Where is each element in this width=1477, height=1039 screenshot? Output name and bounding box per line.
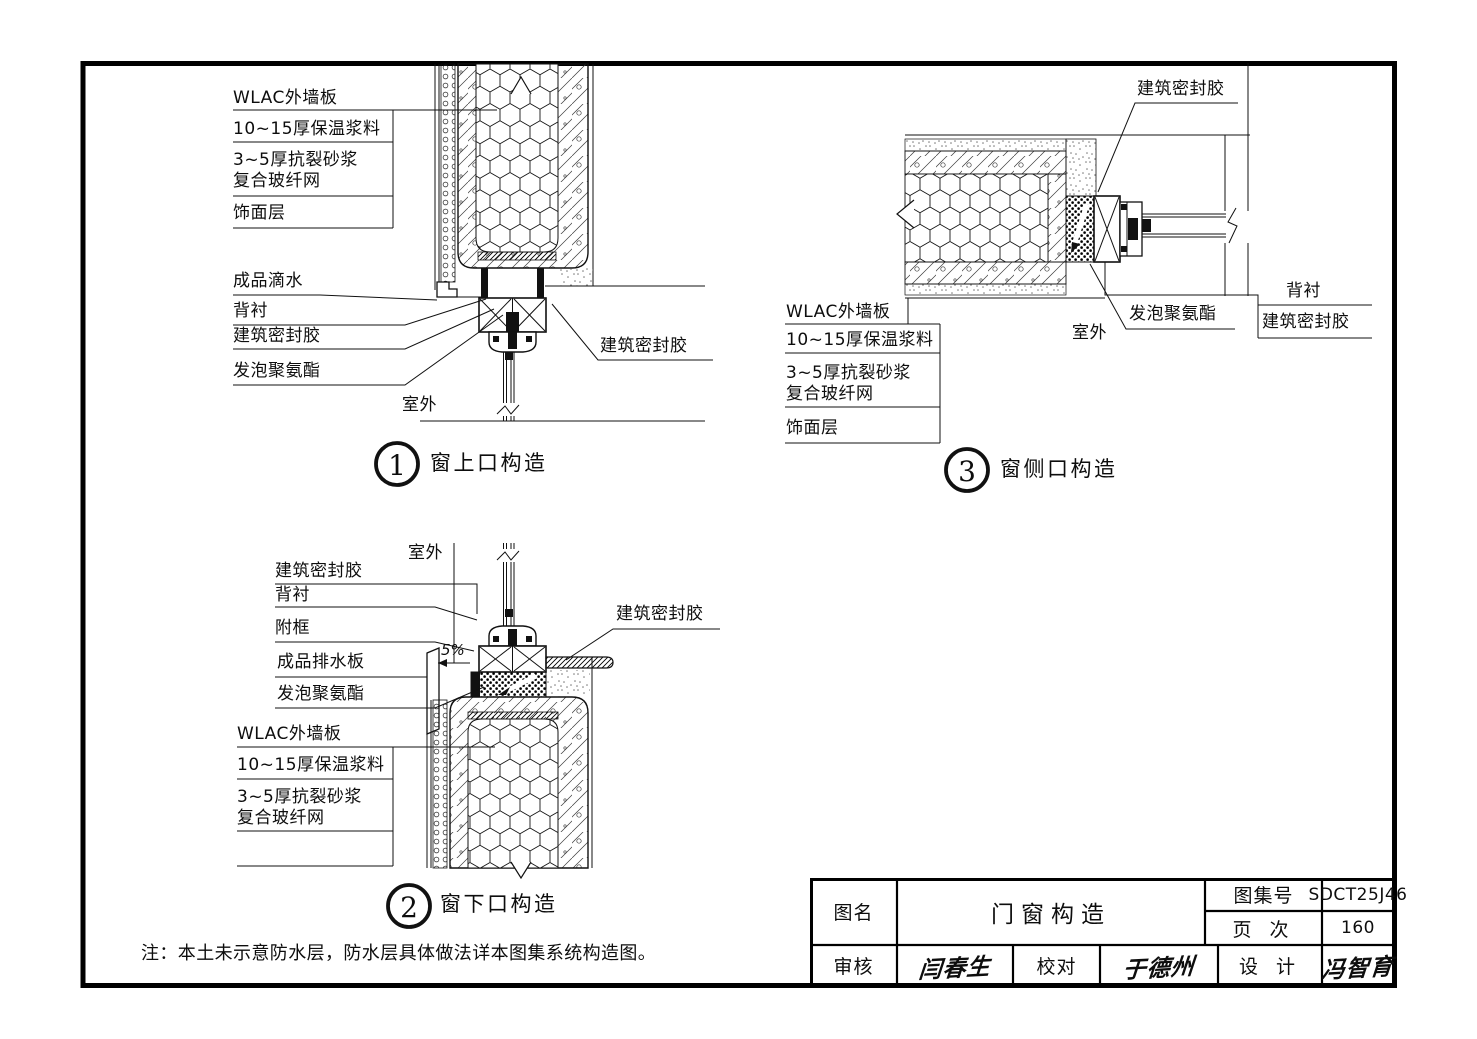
layer-label-insulation-d1: 10~15厚保温浆料 [233,119,381,140]
leader-label-foam-d3: 发泡聚氨酯 [1129,304,1217,325]
leader-label-sealant-d3-top: 建筑密封胶 [1137,79,1225,100]
layer-label-finish-d1: 饰面层 [233,203,286,224]
page-number: 160 [1322,911,1394,945]
leader-label-sealant-d2-left: 建筑密封胶 [275,561,363,582]
layer-label-mortar-d1: 3~5厚抗裂砂浆 复合玻纤网 [233,150,358,191]
callout-number-1: 1 [380,449,414,483]
leader-label-backing-d1: 背衬 [233,301,268,322]
auditor-label: 审核 [810,945,897,986]
leader-label-backing-d3: 背衬 [1286,281,1321,302]
layer-label-wlac-panel-d2: WLAC外墙板 [237,724,341,745]
atlas-number: SDCT25J46 [1322,878,1394,911]
callout-number-3: 3 [950,455,984,489]
leader-label-foam-d1: 发泡聚氨酯 [233,361,321,382]
outdoor-label-d1: 室外 [402,395,437,416]
auditor-signature: 闫春生 [895,942,1014,989]
sheet-border [83,64,1395,986]
layer-label-mortar-d2: 3~5厚抗裂砂浆 复合玻纤网 [237,787,362,828]
note-text: 注：本土未示意防水层，防水层具体做法详本图集系统构造图。 [141,943,656,965]
leader-label-sealant-d3-right: 建筑密封胶 [1262,312,1350,333]
title-block-name-label: 图名 [810,878,897,945]
callout-title-2: 窗下口构造 [440,892,558,918]
leader-label-foam-d2: 发泡聚氨酯 [277,684,365,705]
outdoor-label-d2: 室外 [408,543,443,564]
layer-label-wlac-panel-d3: WLAC外墙板 [786,302,890,323]
proofreader-signature: 于德州 [1098,942,1219,989]
callout-title-1: 窗上口构造 [430,451,548,477]
layer-label-finish-d3: 饰面层 [786,418,839,439]
drawing-sheet: WLAC外墙板 10~15厚保温浆料 3~5厚抗裂砂浆 复合玻纤网 饰面层 成品… [0,0,1477,1039]
leader-label-sealant-d2-right: 建筑密封胶 [616,604,704,625]
layer-label-wlac-panel-d1: WLAC外墙板 [233,88,337,109]
leader-label-sealant-d1-left: 建筑密封胶 [233,326,321,347]
detail-3-drawing [785,63,1372,491]
slope-label-d2: 5% [441,641,465,659]
leader-label-subframe-d2: 附框 [275,618,310,639]
proofreader-label: 校对 [1013,945,1100,986]
leader-label-drain-board-d2: 成品排水板 [277,652,365,673]
designer-label: 设 计 [1218,945,1322,986]
outdoor-label-d3: 室外 [1072,323,1107,344]
drawing-title: 门窗构造 [897,878,1205,945]
page-number-label: 页 次 [1205,911,1322,945]
atlas-number-label: 图集号 [1205,878,1322,911]
layer-label-mortar-d3: 3~5厚抗裂砂浆 复合玻纤网 [786,363,911,404]
leader-label-backing-d2: 背衬 [275,585,310,606]
layer-label-insulation-d2: 10~15厚保温浆料 [237,755,385,776]
callout-title-3: 窗侧口构造 [1000,457,1118,483]
callout-number-2: 2 [392,891,426,925]
designer-signature: 冯智育 [1320,943,1396,988]
leader-label-drip-d1: 成品滴水 [233,271,303,292]
leader-label-sealant-d1-right: 建筑密封胶 [600,336,688,357]
layer-label-insulation-d3: 10~15厚保温浆料 [786,330,934,351]
